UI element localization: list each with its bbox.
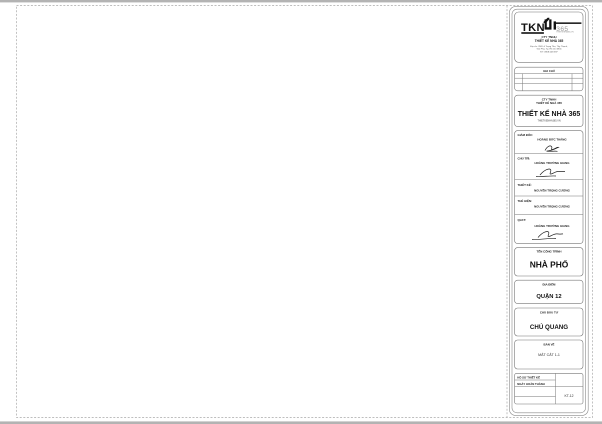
svg-text:THIETKENHA365.VN: THIETKENHA365.VN	[556, 31, 574, 34]
svg-text:THIẾT KẾ NHÀ 365: THIẾT KẾ NHÀ 365	[536, 100, 562, 105]
svg-text:THIẾT KẾ:: THIẾT KẾ:	[518, 182, 532, 187]
svg-text:HOÀNG TRƯỜNG GIANG: HOÀNG TRƯỜNG GIANG	[535, 160, 571, 165]
svg-text:HOÀNG TRƯỜNG GIANG: HOÀNG TRƯỜNG GIANG	[535, 223, 571, 228]
svg-text:TÊN CÔNG TRÌNH: TÊN CÔNG TRÌNH	[537, 249, 562, 254]
svg-text:Địa chỉ: 284 Lê Trọng Tấn, Tây: Địa chỉ: 284 Lê Trọng Tấn, Tây Thạnh,	[530, 45, 568, 48]
svg-text:NHÀ PHỐ: NHÀ PHỐ	[530, 258, 569, 269]
svg-text:NGÀY HOÀN THÀNH: NGÀY HOÀN THÀNH	[517, 381, 545, 386]
svg-text:HOÀNG ĐỨC THẮNG: HOÀNG ĐỨC THẮNG	[537, 136, 567, 141]
svg-text:ĐT: 0908.049.597: ĐT: 0908.049.597	[540, 51, 558, 53]
svg-text:CHÚ QUANG: CHÚ QUANG	[530, 324, 568, 331]
svg-text:ĐỊA ĐIỂM: ĐỊA ĐIỂM	[543, 281, 556, 286]
svg-text:HỒ SƠ THIẾT KẾ: HỒ SƠ THIẾT KẾ	[517, 374, 540, 379]
svg-text:NGUYỄN TRỌNG CƯỜNG: NGUYỄN TRỌNG CƯỜNG	[534, 187, 570, 192]
svg-text:CHỦ TRÌ:: CHỦ TRÌ:	[518, 155, 531, 160]
svg-text:GHI CHÚ: GHI CHÚ	[543, 68, 555, 73]
svg-text:THỂ HIỆN:: THỂ HIỆN:	[518, 198, 532, 203]
svg-text:BẢN VỂ: BẢN VỂ	[544, 341, 555, 346]
svg-text:QUẬN 12: QUẬN 12	[536, 293, 561, 300]
svg-text:KT-12: KT-12	[564, 394, 573, 398]
svg-text:NGUYỄN TRỌNG CƯỜNG: NGUYỄN TRỌNG CƯỜNG	[534, 203, 570, 208]
svg-text:CHỦ ĐẦU TƯ: CHỦ ĐẦU TƯ	[540, 310, 559, 315]
svg-text:GIÁM ĐỐC:: GIÁM ĐỐC:	[518, 132, 534, 137]
svg-text:Tân Phú, Tp. Hồ Chí Minh: Tân Phú, Tp. Hồ Chí Minh	[536, 48, 562, 51]
svg-text:QLKT:: QLKT:	[518, 218, 527, 222]
svg-text:THIẾT KẾ NHÀ 365: THIẾT KẾ NHÀ 365	[535, 38, 564, 43]
svg-text:THIETKENHA365.VN: THIETKENHA365.VN	[537, 120, 560, 123]
svg-text:MẮT CẮT 1-1: MẮT CẮT 1-1	[538, 352, 560, 357]
